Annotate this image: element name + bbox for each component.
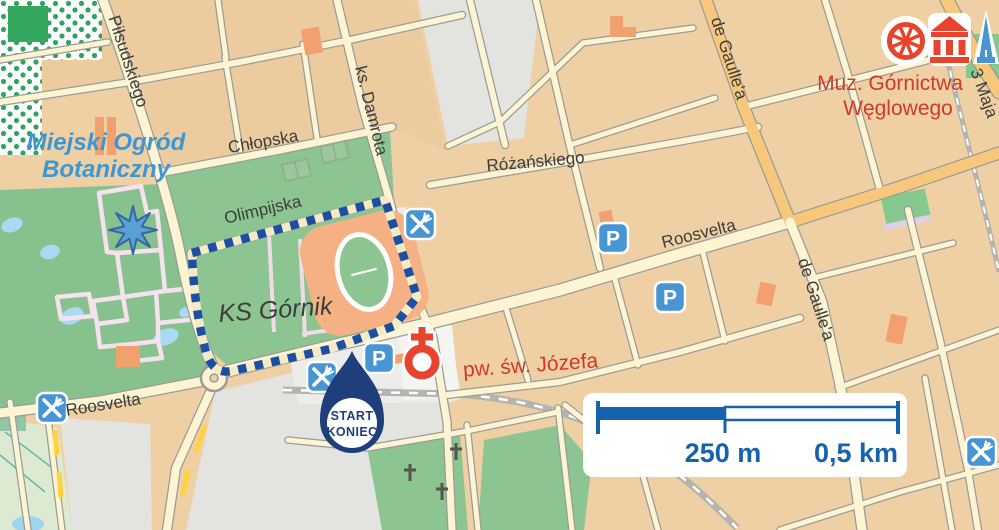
parking-icon[interactable] [655,282,685,312]
map-canvas: P [0,0,999,530]
scale-mid-label: 250 m [685,438,762,468]
start-label: START [331,409,374,423]
tour-map: P [0,0,999,530]
restaurant-icon[interactable] [966,437,996,467]
mining-wheel-icon[interactable] [881,16,931,66]
parking-icon[interactable] [598,223,628,253]
botanical-garden-label-line2: Botaniczny [42,156,172,183]
museum-icon[interactable] [928,13,971,66]
restaurant-icon[interactable] [405,209,435,239]
parking-icon[interactable] [364,343,394,373]
botanical-garden-label-line1: Miejski Ogród [27,129,187,156]
scale-bar: 250 m 0,5 km [583,393,907,477]
museum-label-line1: Muz. Górnictwa [817,72,963,95]
restaurant-icon[interactable] [37,393,67,423]
garden-star [109,206,157,254]
museum-label-line2: Węglowego [843,97,953,120]
scale-end-label: 0,5 km [814,438,898,468]
koniec-label: KONIEC [326,425,377,439]
